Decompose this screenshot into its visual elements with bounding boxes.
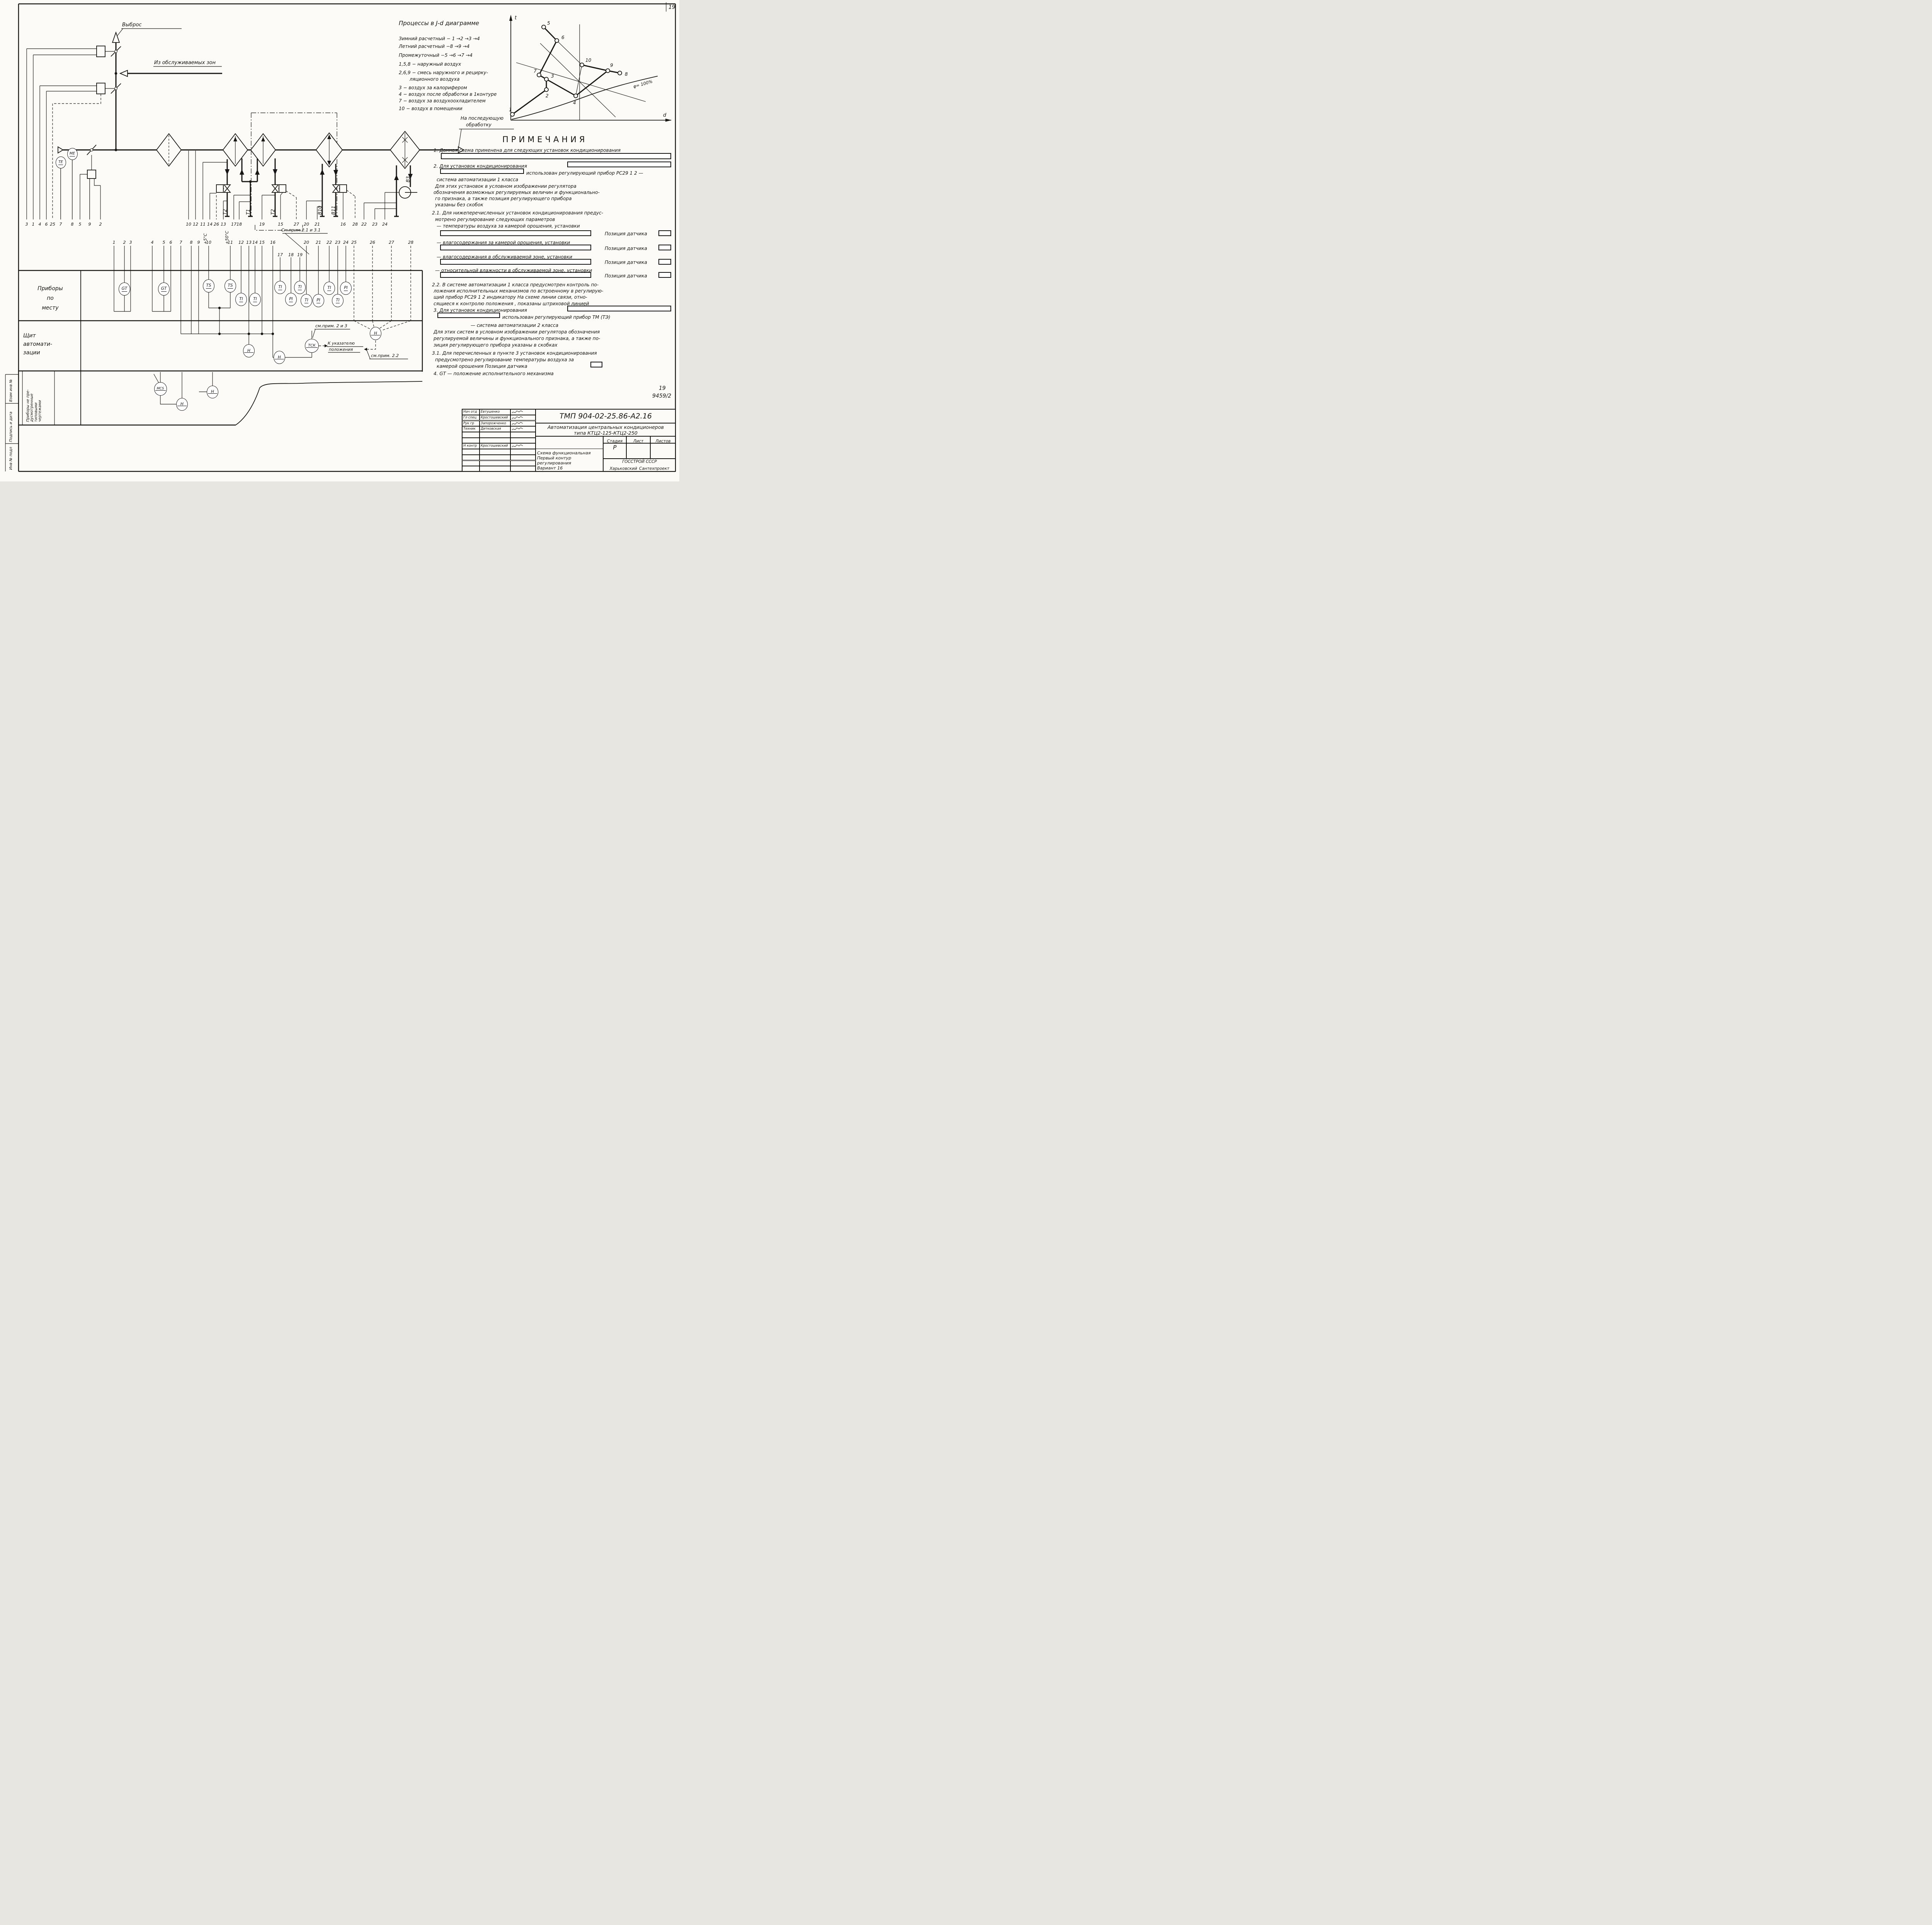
titleblock-cell <box>480 461 510 466</box>
note-line: указаны без скобок <box>435 202 483 207</box>
blank-box <box>658 272 671 278</box>
processes-title: Процессы в J-d диаграмме <box>399 20 479 27</box>
wire-number-row2: 27 <box>389 240 394 245</box>
hand-doc-number: 9459/2 <box>652 393 671 399</box>
note-line: камерой орошения Позиция датчика <box>437 364 527 369</box>
stage-value: Р <box>613 444 616 451</box>
exhaust-label: Выброс <box>122 22 142 28</box>
titleblock-cell <box>462 461 480 466</box>
wire-number-row2: 13 <box>246 240 252 245</box>
titleblock-cell: Рук гр <box>462 421 480 427</box>
note-line: регулируемой величины и функционального … <box>434 336 600 341</box>
note-line: сящиеся к контролю положения , показаны … <box>434 301 589 306</box>
wire-number-row2: 2 <box>123 240 126 245</box>
instrument-ts: TS <box>224 279 236 292</box>
instrument-gt: GT <box>158 282 170 296</box>
wire-number-row2: 17 <box>277 252 283 257</box>
table-row1-label-2: по <box>27 296 73 301</box>
callout-note-22: см.прим. 2.2 <box>371 354 399 358</box>
indicator-label-1: К указателю <box>328 342 355 346</box>
td-diagram: 12345678910tdφ= 100% <box>509 15 672 122</box>
scheme-line-2: Первый контур регулирования <box>537 456 602 466</box>
drawing-title-1: Автоматизация центральных кондиционеров <box>536 424 675 430</box>
wire-number-row1: 9 <box>88 222 91 227</box>
wire-number-row1: 18 <box>236 222 242 227</box>
wire-number-row1: 28 <box>352 222 358 227</box>
process-line: Зимний расчетный − 1 →2 →3 →4 <box>399 36 480 41</box>
wire-number-row2: 22 <box>327 240 332 245</box>
titleblock-cell: Кростошевский <box>480 415 510 421</box>
hand-page-number: 19 <box>659 386 666 391</box>
wire-number-row1: 12 <box>193 222 198 227</box>
instrument-h: H <box>207 386 218 398</box>
chart-phi-label: φ= 100% <box>633 79 653 89</box>
titleblock-cell <box>480 466 510 472</box>
wire-number-row2: 6 <box>170 240 172 245</box>
wire-number-row2: 21 <box>316 240 321 245</box>
chart-point-label: 3 <box>551 73 554 79</box>
instrument-h: H <box>274 351 285 364</box>
wire-number-row2: 5 <box>163 240 165 245</box>
table-row2-label-1: Щит <box>23 333 73 339</box>
wire-number-row1: 14 <box>207 222 213 227</box>
instrument-ti: TI <box>323 282 335 295</box>
chart-point-label: 8 <box>625 71 628 77</box>
titleblock-cell: Кростошевский <box>480 443 510 449</box>
titleblock-cell <box>510 415 536 421</box>
note-line: использован регулирующий прибор ТМ (ТЭ) <box>502 315 611 320</box>
pump-tag-b3: В3 <box>406 171 411 182</box>
titleblock-cell <box>510 455 536 461</box>
note-line: обозначения возможных регулируемых велич… <box>434 190 600 195</box>
instrument-ti: TI <box>301 294 312 307</box>
wire-number-row1: 25 <box>50 222 55 227</box>
chart-point-label: 7 <box>534 68 537 74</box>
callout-note-21-31: См.прим.2.1 и 3.1 <box>281 228 321 233</box>
stamp-podpis: Подпись и дата <box>9 403 13 442</box>
wire-number-row2: 25 <box>351 240 357 245</box>
blank-box <box>441 153 671 159</box>
titleblock-cell <box>480 432 510 438</box>
org-line-2: Харьковский <box>610 466 637 471</box>
wire-number-row2: 11 <box>228 240 233 245</box>
instrument-gt: GT <box>119 282 130 296</box>
instrument-h: H <box>243 344 255 357</box>
pipe-tag-b11: В11 <box>331 199 336 215</box>
chart-point-label: 6 <box>561 35 565 40</box>
scheme-line-1: Схема функциональная <box>537 451 602 456</box>
chart-ylabel: t <box>515 15 517 21</box>
titleblock-cell <box>510 449 536 455</box>
process-line: 10 − воздух в помещении <box>399 106 463 111</box>
pipe-tag-b10: В10 <box>318 199 323 215</box>
instrument-tag: TI <box>327 286 331 291</box>
titleblock-cell <box>510 421 536 427</box>
wire-number-row2: 18 <box>288 252 294 257</box>
title-block: Нач отдЕвтушенкоГл спецКростошевскийРук … <box>462 409 675 471</box>
option-enclosure <box>251 113 337 230</box>
blank-box <box>440 230 591 236</box>
titleblock-cell: Гл спец <box>462 415 480 421</box>
wire-number-row1: 16 <box>340 222 346 227</box>
instrument-ti: TI <box>274 281 286 294</box>
table-row2-label-3: зации <box>23 350 73 356</box>
instrument-ti: TI <box>235 293 247 306</box>
wire-number-row1: 24 <box>382 222 388 227</box>
instrument-ti: TI <box>249 293 261 306</box>
wire-number-row2: 19 <box>297 252 303 257</box>
note-line: система автоматизации 1 класса <box>437 177 518 182</box>
wire-number-row2: 8 <box>190 240 193 245</box>
wire-number-row1: 22 <box>361 222 367 227</box>
filter-section <box>156 134 181 166</box>
note-line: — температуры воздуха за камерой орошени… <box>437 224 580 229</box>
wire-number-row1: 26 <box>214 222 219 227</box>
instrument-tag: TI <box>336 298 340 303</box>
exhaust-duct <box>27 29 222 150</box>
note-line: го признака, а также позиция регулирующе… <box>435 196 571 201</box>
instrument-table <box>19 270 422 425</box>
instrument-ti: TI <box>332 294 344 307</box>
titleblock-cell: Нач отд <box>462 409 480 415</box>
table-row1-label-3: месту <box>27 305 73 311</box>
titleblock-cell <box>510 409 536 415</box>
note-line: 1. Данная схема применена для следующих … <box>434 148 621 153</box>
wire-number-row1: 7 <box>60 222 62 227</box>
instrument-tag: TS <box>206 283 211 289</box>
titleblock-cell: Техник <box>462 426 480 432</box>
instrument-тск: ТСК <box>305 339 319 353</box>
blank-box <box>658 259 671 265</box>
wire-number-row2: 14 <box>252 240 258 245</box>
wire-number-row1: 17 <box>231 222 236 227</box>
titleblock-cell <box>480 438 510 444</box>
blank-box <box>590 362 602 367</box>
wire-number-row1: 20 <box>304 222 309 227</box>
titleblock-cell: Дитковская <box>480 426 510 432</box>
wire-number-row1: 21 <box>315 222 320 227</box>
chart-point-label: 1 <box>509 107 512 112</box>
table-row2-label-2: автомати- <box>23 342 73 347</box>
note-line: ложения исполнительных механизмов по вст… <box>434 289 603 294</box>
titleblock-cell <box>510 438 536 444</box>
wire-number-row1: 11 <box>200 222 206 227</box>
blank-box <box>440 259 591 265</box>
titleblock-cell <box>462 466 480 472</box>
stamp-inv: Инв № подл <box>9 444 13 470</box>
titleblock-cell <box>510 443 536 449</box>
blank-box <box>658 245 671 250</box>
note-line: Для этих установок в условном изображени… <box>435 184 577 189</box>
instrument-pi: PI <box>340 282 352 295</box>
note-line: — система автоматизации 2 класса <box>471 323 558 328</box>
instrument-tag: TI <box>298 285 302 290</box>
chart-point-label: 2 <box>546 93 549 99</box>
titleblock-cell <box>510 432 536 438</box>
wire-number-row2: 4 <box>151 240 154 245</box>
wire-number-row2: 9 <box>197 240 200 245</box>
corner-page-number: 19 <box>668 5 675 10</box>
instrument-tag: TI <box>253 297 257 302</box>
titleblock-cell <box>480 455 510 461</box>
table-row3-label: Приборы не пре-дусмотренныетиповымичерте… <box>26 373 43 422</box>
instrument-me: ME <box>67 148 78 160</box>
process-line: Промежуточный −5 →6 →7 →4 <box>399 53 473 58</box>
wire-number-row2: 12 <box>238 240 244 245</box>
chart-point-label: 5 <box>547 20 550 26</box>
process-line: ляционного воздуха <box>410 77 459 82</box>
titleblock-cell: Запорожченко <box>480 421 510 427</box>
note-line: 2.1. Для нижеперечисленных установок кон… <box>432 211 603 216</box>
instrument-mcs: MCS <box>154 382 167 396</box>
process-line: 2,6,9 − смесь наружного и рецирку- <box>399 70 488 75</box>
blank-box <box>440 272 591 278</box>
instrument-pi: PI <box>285 293 297 306</box>
drawing-sheet: .ln{stroke:#161616;stroke-width:1.15;fil… <box>0 0 679 481</box>
sheet-frame <box>5 2 675 471</box>
wire-number-row2: 16 <box>270 240 276 245</box>
blank-box <box>658 230 671 236</box>
stage-label: Стадия <box>607 439 622 443</box>
chart-point-label: 4 <box>573 100 576 105</box>
instrument-tag: TI <box>239 297 243 302</box>
titleblock-cell: Н контр <box>462 443 480 449</box>
wire-number-row2: 28 <box>408 240 413 245</box>
wire-number-row1: 6 <box>45 222 48 227</box>
chart-xlabel: d <box>663 112 667 118</box>
blank-box <box>567 306 671 311</box>
to-next-label-2: обработку <box>466 122 492 128</box>
note-line: 2.2. В системе автоматизации 1 класса пр… <box>432 282 599 287</box>
process-line: 3 − воздух за калорифером <box>399 85 467 90</box>
table-row1-label-1: Приборы <box>27 286 73 292</box>
titleblock-cell <box>510 426 536 432</box>
instrument-tag: TI <box>304 298 308 303</box>
sheets-value <box>650 443 676 459</box>
process-line: 1,5,8 − наружный воздух <box>399 62 461 67</box>
instrument-ti: TI <box>294 281 306 294</box>
wire-number-row1: 23 <box>372 222 378 227</box>
titleblock-cell: Евтушенко <box>480 409 510 415</box>
wire-number-row1: 3 <box>26 222 28 227</box>
instrument-pi: PI <box>313 294 324 307</box>
note-line: зиция регулирующего прибора указаны в ск… <box>434 343 558 348</box>
instrument-tag: TE <box>58 160 63 165</box>
titleblock-cell <box>462 438 480 444</box>
wire-number-row2: 3 <box>129 240 132 245</box>
chart-point-label: 10 <box>585 58 592 63</box>
to-next-label: На последующую <box>461 116 503 121</box>
callout-note-2-3: см.прим. 2 и 3 <box>315 324 347 328</box>
process-line: Летний расчетный −8 →9 →4 <box>399 44 469 49</box>
titleblock-cell <box>480 449 510 455</box>
wire-number-row1: 13 <box>221 222 226 227</box>
wire-number-row1: 15 <box>278 222 283 227</box>
instrument-ts: TS <box>203 279 214 292</box>
wire-number-row1: 4 <box>39 222 41 227</box>
titleblock-cell <box>510 466 536 472</box>
instrument-h: H <box>370 327 381 340</box>
pipe-tag-t2: Т2 <box>223 199 228 215</box>
wire-number-row2: 26 <box>370 240 375 245</box>
instrument-tag: PI <box>344 286 347 291</box>
wire-number-row2: 1 <box>113 240 116 245</box>
wire-number-row2: 23 <box>335 240 340 245</box>
instrument-tag: PI <box>316 298 320 303</box>
note-line: Позиция датчика <box>605 274 647 279</box>
wire-number-row1: 1 <box>32 222 35 227</box>
titleblock-cell <box>462 449 480 455</box>
instrument-tag: GT <box>161 286 167 292</box>
titleblock-cell <box>462 432 480 438</box>
wire-number-row1: 5 <box>79 222 82 227</box>
note-line: 4. GТ — положение исполнительного механи… <box>434 371 554 376</box>
instrument-tag: ME <box>70 151 75 156</box>
stamp-vzam: Взам инв № <box>9 374 13 402</box>
sheet-value <box>626 443 650 459</box>
org-line-3: Сантехпроект <box>639 466 669 471</box>
instrument-tag: TI <box>278 285 282 290</box>
note-line: щий прибор РС29 1 2 индикатору На схеме … <box>434 295 587 300</box>
indicator-label-2: положения <box>329 348 353 352</box>
note-line: Позиция датчика <box>605 260 647 265</box>
blank-box <box>440 245 591 250</box>
instrument-tag: GT <box>122 286 128 292</box>
drawing-title-2: типа КТЦ2-125-КТЦ2-250 <box>536 430 675 436</box>
wire-number-row2: 24 <box>343 240 349 245</box>
note-line: Для этих систем в условном изображении р… <box>434 330 600 335</box>
process-line: 7 − воздух за воздухоохладителем <box>399 99 486 104</box>
wire-number-row1: 19 <box>259 222 265 227</box>
blank-box <box>567 162 671 167</box>
wire-number-row1: 8 <box>71 222 74 227</box>
from-zones-label: Из обслуживаемых зон <box>154 60 216 66</box>
blank-box <box>437 313 500 318</box>
instrument-tag: TS <box>228 283 233 289</box>
instrument-h: H <box>176 398 188 411</box>
sheet-label: Лист <box>633 439 644 443</box>
chart-point-label: 9 <box>610 63 613 68</box>
note-line: мотрено регулирование следующих параметр… <box>435 217 555 222</box>
note-line: предусмотрено регулирование температуры … <box>435 357 574 362</box>
wire-number-row1: 27 <box>294 222 299 227</box>
instrument-tag: PI <box>289 297 293 302</box>
process-line: 4 − воздух после обработки в 1контуре <box>399 92 497 97</box>
blank-box <box>440 168 524 174</box>
notes-header: ПРИМЕЧАНИЯ <box>502 135 587 144</box>
note-line: 3.1. Для перечисленных в пункте 3 устано… <box>432 351 597 356</box>
titleblock-cell <box>462 455 480 461</box>
wire-number-row2: 7 <box>180 240 182 245</box>
doc-number: ТМП 904-02-25.86-А2.16 <box>560 412 652 420</box>
spray-chamber <box>364 131 420 216</box>
wire-number-row1: 10 <box>186 222 191 227</box>
scheme-line-3: Вариант 16 <box>537 466 602 471</box>
org-line-1: ГОССТРОЙ СССР <box>604 459 675 464</box>
titleblock-cell <box>510 461 536 466</box>
cooler-section <box>306 133 355 216</box>
wire-number-row2: 10 <box>206 240 211 245</box>
note-line: Позиция датчика <box>605 246 647 251</box>
wire-number-row1: 2 <box>99 222 102 227</box>
wire-number-row2: 20 <box>304 240 309 245</box>
instrument-te: TE <box>56 156 66 168</box>
sheets-label: Листов <box>655 439 670 443</box>
note-line: использован регулирующий прибор РС29 1 2… <box>526 171 643 176</box>
note-line: Позиция датчика <box>605 231 647 236</box>
wire-number-row2: 15 <box>259 240 265 245</box>
pipe-tag-t2b: Т2 <box>270 199 276 215</box>
pipe-tag-t1: Т1 <box>246 199 251 215</box>
